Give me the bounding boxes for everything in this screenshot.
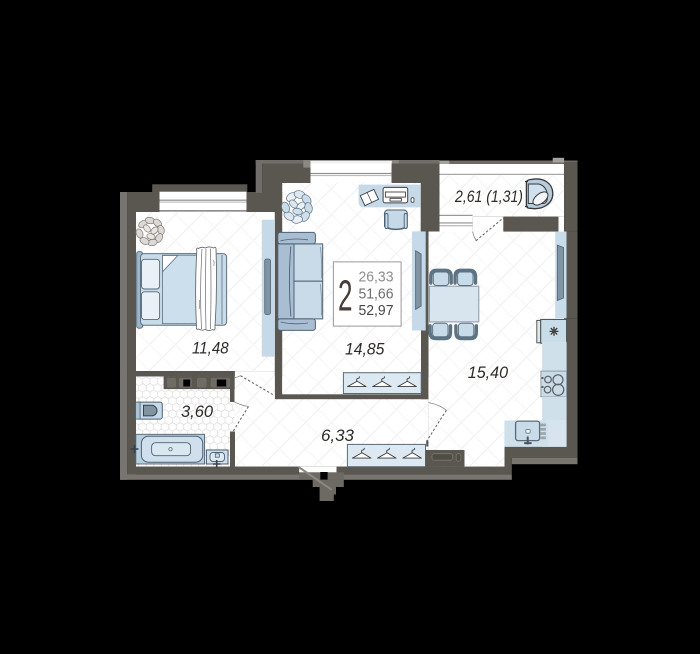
svg-text:3,60: 3,60 (181, 403, 214, 421)
svg-text:11,48: 11,48 (192, 339, 229, 357)
svg-text:14,85: 14,85 (345, 341, 385, 359)
svg-text:2: 2 (338, 271, 353, 320)
svg-text:6,33: 6,33 (321, 427, 355, 445)
svg-text:51,66: 51,66 (359, 286, 394, 302)
svg-text:2,61 (1,31): 2,61 (1,31) (454, 188, 523, 206)
svg-text:52,97: 52,97 (359, 303, 394, 319)
svg-text:15,40: 15,40 (468, 364, 509, 382)
svg-text:26,33: 26,33 (359, 270, 394, 286)
